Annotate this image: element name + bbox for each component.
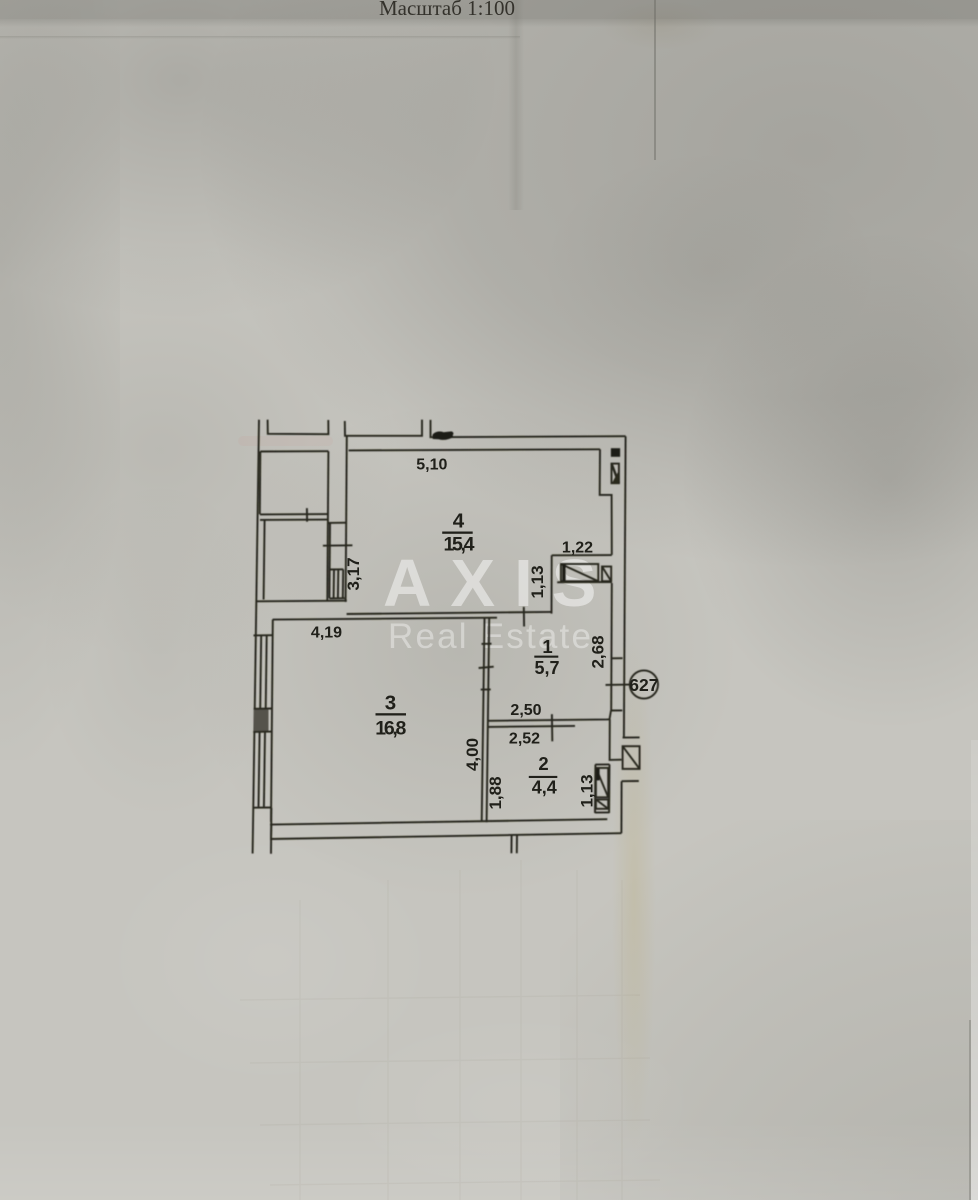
svg-text:4: 4: [453, 509, 465, 532]
svg-text:1,22: 1,22: [562, 539, 593, 556]
svg-text:2,52: 2,52: [509, 731, 540, 748]
svg-text:2,68: 2,68: [589, 635, 608, 668]
svg-text:2,50: 2,50: [510, 702, 541, 719]
svg-text:4,4: 4,4: [532, 778, 557, 798]
svg-text:1,13: 1,13: [578, 774, 597, 807]
svg-text:15,4: 15,4: [444, 534, 475, 556]
svg-text:4,00: 4,00: [463, 738, 482, 771]
svg-text:3: 3: [385, 692, 396, 715]
svg-text:4,19: 4,19: [311, 624, 342, 641]
svg-text:5,10: 5,10: [416, 456, 447, 473]
svg-text:1,13: 1,13: [528, 565, 547, 598]
svg-text:3,17: 3,17: [344, 557, 363, 590]
svg-text:16,8: 16,8: [375, 718, 406, 740]
svg-text:1,88: 1,88: [486, 776, 505, 809]
svg-text:627: 627: [629, 675, 658, 695]
svg-text:1: 1: [542, 636, 552, 657]
svg-text:5,7: 5,7: [534, 658, 559, 678]
svg-text:2: 2: [538, 753, 548, 774]
